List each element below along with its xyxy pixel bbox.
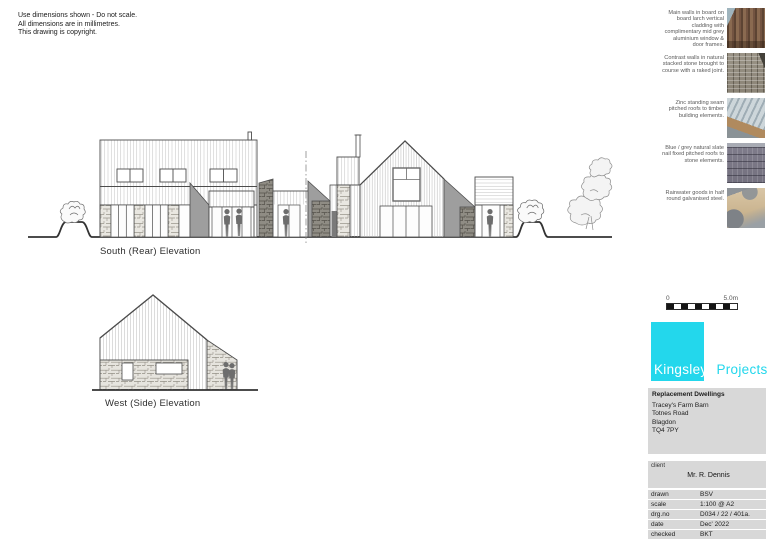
timber-cladding-photo bbox=[727, 8, 765, 48]
kingsley-projects-logo: Kingsley Projects bbox=[654, 362, 768, 377]
copyright-line: Use dimensions shown - Do not scale. bbox=[18, 12, 137, 21]
info-value: BKT bbox=[700, 530, 713, 539]
west-side-elevation-drawing bbox=[90, 288, 265, 403]
client-panel: client Mr. R. Dennis bbox=[648, 461, 766, 488]
small-window bbox=[122, 363, 133, 380]
info-label: drawn bbox=[648, 490, 700, 499]
material-note: Zinc standing seam pitched roofs to timb… bbox=[662, 98, 766, 138]
project-address-line: TQ4 7PY bbox=[652, 427, 766, 436]
gable-house bbox=[360, 141, 444, 237]
scale-bar: 0 5.0m bbox=[666, 295, 740, 310]
client-name: Mr. R. Dennis bbox=[651, 472, 766, 479]
project-info-panel: Replacement Dwellings Tracey's Farm Barn… bbox=[648, 388, 766, 454]
material-note-text: Blue / grey natural slate nail fixed pit… bbox=[662, 143, 727, 164]
south-elevation-label: South (Rear) Elevation bbox=[100, 246, 201, 257]
info-label: drg.no bbox=[648, 510, 700, 519]
project-title: Replacement Dwellings bbox=[652, 391, 766, 400]
info-row-date: date Dec' 2022 bbox=[648, 520, 766, 529]
copyright-line: All dimensions are in millimetres. bbox=[18, 21, 137, 30]
glazed-link bbox=[209, 191, 254, 237]
info-label: date bbox=[648, 520, 700, 529]
info-row-scale: scale 1:100 @ A2 bbox=[648, 500, 766, 509]
right-wing bbox=[475, 177, 513, 237]
scale-start-label: 0 bbox=[666, 295, 670, 302]
info-label: checked bbox=[648, 530, 700, 539]
project-address-line: Totnes Road bbox=[652, 410, 766, 419]
info-value: 1:100 @ A2 bbox=[700, 500, 734, 509]
project-address-line: Blagdon bbox=[652, 419, 766, 428]
material-note-text: Main walls in board on board larch verti… bbox=[662, 8, 727, 48]
info-row-drgno: drg.no D034 / 22 / 401a. bbox=[648, 510, 766, 519]
flue-pipe bbox=[355, 135, 362, 157]
material-note-text: Zinc standing seam pitched roofs to timb… bbox=[662, 98, 727, 119]
horizontal-window bbox=[156, 363, 182, 374]
stone-pier bbox=[504, 205, 513, 237]
material-note: Rainwater goods in half round galvanised… bbox=[662, 188, 766, 228]
info-row-drawn: drawn BSV bbox=[648, 490, 766, 499]
project-address-line: Tracey's Farm Barn bbox=[652, 402, 766, 411]
clerestory-window bbox=[117, 169, 237, 182]
stone-pier bbox=[312, 201, 330, 237]
info-row-checked: checked BKT bbox=[648, 530, 766, 539]
logo-word-projects: Projects bbox=[716, 362, 767, 377]
south-rear-elevation-drawing bbox=[20, 95, 620, 245]
info-label: scale bbox=[648, 500, 700, 509]
material-note: Contrast walls in natural stacked stone … bbox=[662, 53, 766, 93]
shrub-icon bbox=[60, 201, 85, 223]
scale-end-label: 5.0m bbox=[724, 295, 738, 302]
material-note-text: Rainwater goods in half round galvanised… bbox=[662, 188, 727, 203]
entrance-wing bbox=[273, 191, 308, 237]
info-value: BSV bbox=[700, 490, 713, 499]
info-value: Dec' 2022 bbox=[700, 520, 729, 529]
rear-box bbox=[337, 157, 360, 237]
client-label: client bbox=[651, 463, 766, 469]
info-value: D034 / 22 / 401a. bbox=[700, 510, 750, 519]
drawing-sheet: Use dimensions shown - Do not scale. All… bbox=[0, 0, 768, 543]
material-note: Blue / grey natural slate nail fixed pit… bbox=[662, 143, 766, 183]
west-elevation-label: West (Side) Elevation bbox=[105, 398, 200, 409]
zinc-roof-photo bbox=[727, 98, 765, 138]
rainwater-gutter-photo bbox=[727, 188, 765, 228]
slate-roof-photo bbox=[727, 143, 765, 183]
stone-pier bbox=[460, 207, 475, 237]
flue bbox=[248, 132, 252, 140]
stone-chimney bbox=[259, 179, 273, 237]
copyright-note: Use dimensions shown - Do not scale. All… bbox=[18, 12, 137, 38]
copyright-line: This drawing is copyright. bbox=[18, 29, 137, 38]
scale-bar-graphic bbox=[666, 303, 738, 310]
material-note-text: Contrast walls in natural stacked stone … bbox=[662, 53, 727, 74]
logo-word-kingsley: Kingsley bbox=[654, 362, 707, 377]
material-note: Main walls in board on board larch verti… bbox=[662, 8, 766, 48]
drawing-info-table: drawn BSV scale 1:100 @ A2 drg.no D034 /… bbox=[648, 490, 766, 540]
shrub-icon bbox=[518, 200, 544, 223]
tree-icon bbox=[568, 158, 612, 230]
stacked-stone-photo bbox=[727, 53, 765, 93]
west-gable-house bbox=[100, 295, 207, 390]
